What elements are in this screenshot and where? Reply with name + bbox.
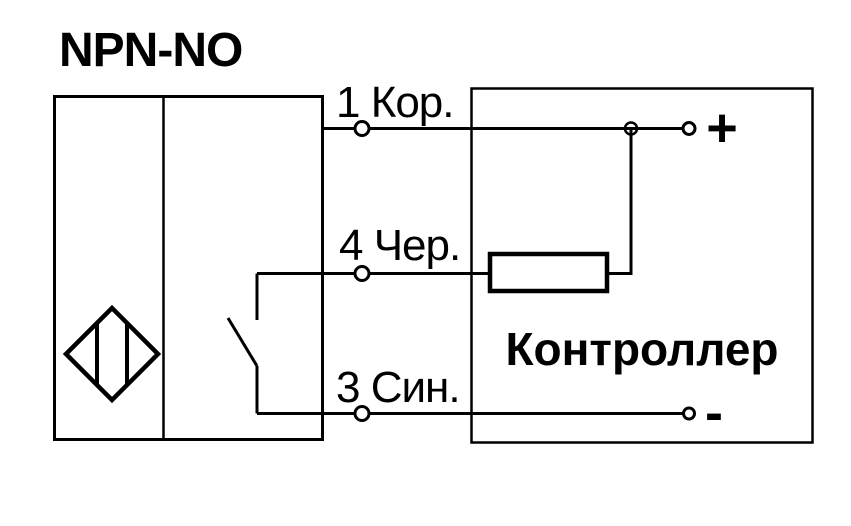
resistor-to-plus-link <box>607 129 631 274</box>
diagram-title: NPN-NO <box>59 30 242 72</box>
wire-label-blue: 3 Син. <box>336 369 460 407</box>
wire-label-brown: 1 Кор. <box>336 84 454 122</box>
minus-terminal-circle <box>684 408 695 419</box>
plus-terminal-circle <box>683 123 695 135</box>
wiring-diagram-canvas: NPN-NO 1 Кор. 4 Чер. 3 Син. Контроллер +… <box>0 0 851 526</box>
controller-label: Контроллер <box>471 327 813 371</box>
minus-terminal-label: - <box>694 387 734 439</box>
load-resistor-icon <box>490 254 607 291</box>
plus-terminal-label: + <box>700 102 744 154</box>
wire-label-black: 4 Чер. <box>339 227 460 265</box>
sensor-body <box>55 97 323 440</box>
